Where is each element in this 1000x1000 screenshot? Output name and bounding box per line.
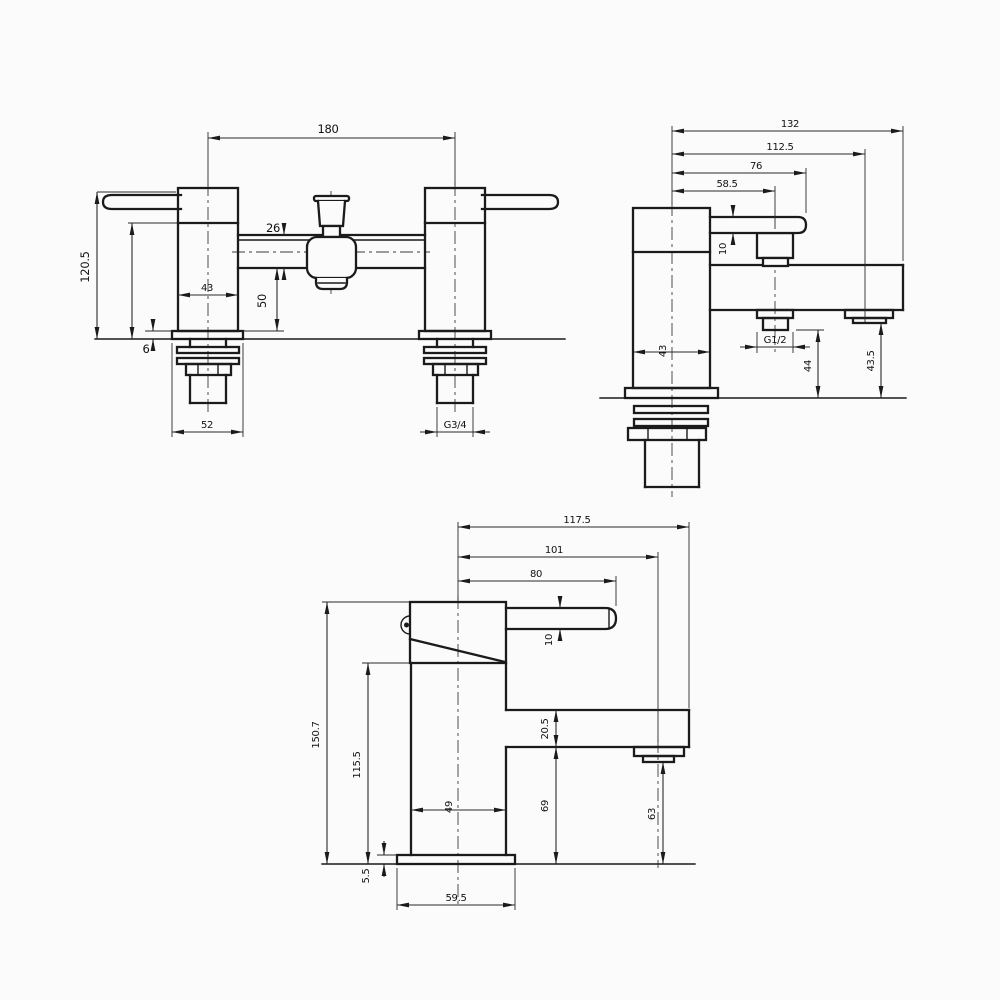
dim-body-height: 115.5 — [352, 751, 363, 778]
dim-total-height: 150.7 — [311, 721, 322, 748]
dim-spout-projection: 101 — [545, 545, 563, 556]
dim-center-distance: 180 — [317, 122, 338, 136]
right-pillar — [419, 188, 558, 403]
dim-outlet-to-deck: 63 — [647, 808, 658, 820]
dim-handle-projection: 76 — [750, 161, 762, 172]
dim-body-width: 49 — [444, 801, 455, 813]
diverter — [307, 196, 356, 289]
left-handle — [103, 195, 181, 209]
dim-spout-depth: 20.5 — [540, 718, 551, 739]
spout-outlet — [845, 310, 893, 318]
dim-spout-projection: 112.5 — [766, 142, 793, 153]
right-handle — [482, 195, 558, 209]
dim-handle-thickness: 10 — [718, 243, 729, 255]
dim-spout-outlet-to-deck: 43.5 — [866, 350, 877, 371]
dim-total-projection: 117.5 — [563, 515, 590, 526]
tap-dimension-drawing: 180 120.5 26 50 43 6 52 — [0, 0, 1000, 1000]
dim-spout-to-deck: 50 — [255, 294, 269, 308]
dim-body-width: 43 — [201, 283, 213, 294]
dim-handle-thickness: 10 — [544, 634, 555, 646]
basin-view-dimensions: 117.5 101 80 10 150.7 115.5 5.5 49 20.5 — [311, 515, 689, 910]
dim-handle-projection: 80 — [530, 569, 542, 580]
left-flange — [172, 331, 243, 339]
shower-connector — [757, 233, 793, 258]
side-view: 132 112.5 76 58.5 10 43 G1/2 44 43.5 — [600, 119, 906, 497]
dim-spout-depth: 26 — [266, 221, 280, 235]
dim-total-projection: 132 — [781, 119, 799, 130]
dim-shower-outlet-projection: 58.5 — [716, 179, 737, 190]
dim-inlet-thread: G3/4 — [444, 420, 467, 431]
left-backnut — [186, 364, 231, 375]
front-view-dimensions: 180 120.5 26 50 43 6 52 — [78, 122, 490, 437]
flange — [397, 855, 515, 864]
dim-flange-thickness: 5.5 — [361, 868, 372, 883]
dim-shower-outlet-to-deck: 44 — [803, 360, 814, 372]
right-backnut — [433, 364, 478, 375]
dim-flange-width: 59.5 — [445, 893, 466, 904]
body-side — [633, 208, 710, 388]
technical-drawing-canvas: 180 120.5 26 50 43 6 52 — [0, 0, 1000, 1000]
dim-body-width: 43 — [658, 345, 669, 357]
lever-handle — [506, 608, 616, 629]
dim-flange-width: 52 — [201, 420, 213, 431]
handle-side — [710, 217, 806, 233]
dim-total-height: 120.5 — [78, 251, 92, 282]
flange-side — [625, 388, 718, 398]
dim-spout-underside-to-deck: 69 — [540, 800, 551, 812]
pivot-dot — [404, 623, 409, 628]
dim-flange-thickness: 6 — [142, 342, 149, 356]
dim-shower-thread: G1/2 — [764, 335, 787, 346]
spout-outlet — [634, 747, 684, 756]
basin-view: 117.5 101 80 10 150.7 115.5 5.5 49 20.5 — [311, 515, 695, 910]
front-view: 180 120.5 26 50 43 6 52 — [78, 122, 565, 437]
backnut-side — [628, 428, 706, 440]
